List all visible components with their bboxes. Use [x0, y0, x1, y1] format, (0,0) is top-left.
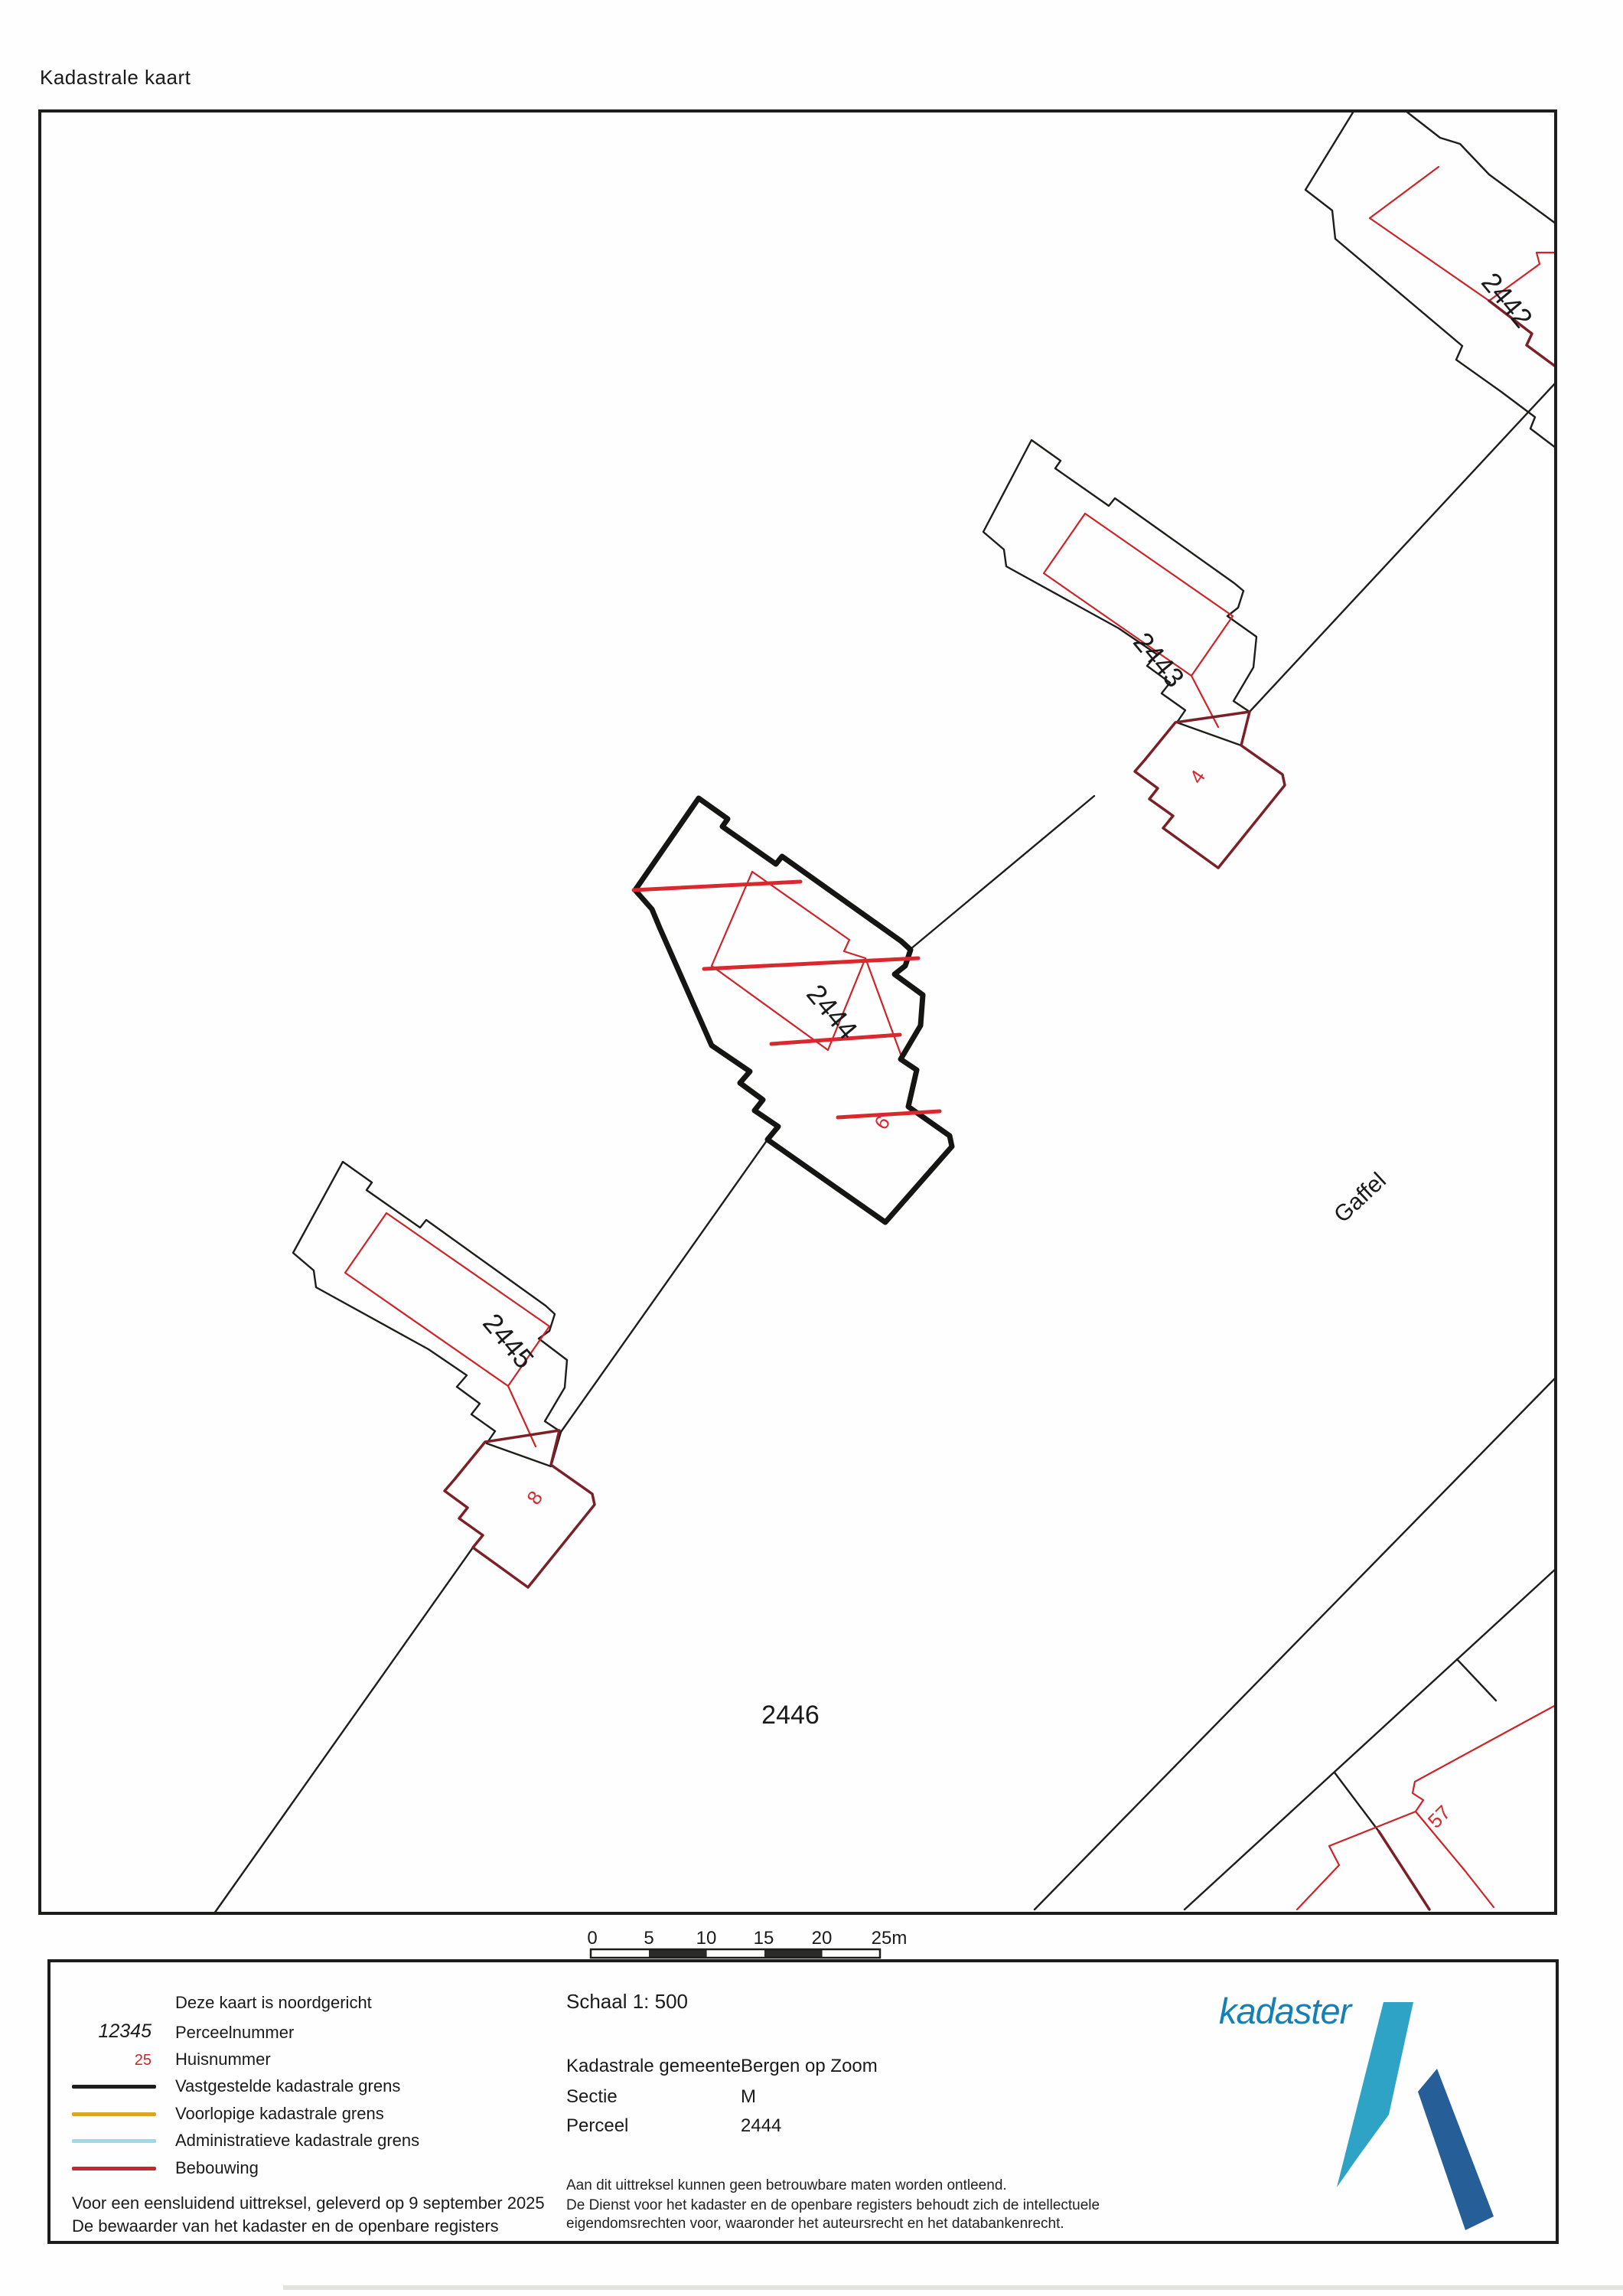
house-number-label: Huisnummer	[175, 2050, 271, 2069]
building-outlines	[345, 167, 1556, 1910]
building-57-outline	[1297, 1705, 1556, 1910]
front-boundary-2443-2444	[911, 796, 1094, 949]
gemeente-label: Kadastrale gemeente	[566, 2056, 741, 2077]
house-number-57: 57	[1423, 1801, 1455, 1833]
building-2442	[1370, 167, 1556, 301]
selected-parcel-2444-boundary	[635, 798, 952, 1222]
perceel-value: 2444	[741, 2115, 781, 2137]
established-boundary-swatch	[72, 2085, 156, 2089]
disclaimer-line2: De Dienst voor het kadaster en de openba…	[566, 2197, 1100, 2214]
house-8-outline	[445, 1430, 595, 1587]
party-wall-2	[704, 958, 918, 969]
sectie-value: M	[741, 2086, 756, 2108]
scale-text: Schaal 1: 500	[566, 1990, 688, 2014]
extract-footer-line2: De bewaarder van het kadaster en de open…	[72, 2216, 499, 2236]
parcel-label-2443: 2443	[1127, 626, 1191, 693]
logo-light-blade	[1337, 2002, 1413, 2187]
scale-tick-15: 15	[754, 1928, 774, 1949]
party-walls-2444	[634, 882, 940, 1117]
parcel-number-label: Perceelnummer	[175, 2023, 294, 2043]
front-boundary-2444-2445	[561, 1140, 768, 1432]
house-number-8: 8	[522, 1486, 547, 1508]
sectie-label: Sectie	[566, 2086, 618, 2108]
building-label: Bebouwing	[175, 2158, 259, 2178]
parcel-label-2442: 2442	[1475, 266, 1539, 334]
road-branch-2	[1457, 1659, 1496, 1701]
logo-dark-blade	[1418, 2069, 1494, 2230]
scale-tick-0: 0	[587, 1928, 597, 1949]
administrative-boundary-label: Administratieve kadastrale grens	[175, 2131, 419, 2151]
administrative-boundary-swatch	[72, 2139, 156, 2143]
parcel-label-2446: 2446	[761, 1701, 820, 1730]
gemeente-value: Bergen op Zoom	[741, 2056, 878, 2077]
scale-tick-5: 5	[644, 1928, 653, 1949]
building-swatch	[72, 2167, 156, 2170]
scale-bar-ticks: 0 5 10 15 20 25m	[587, 1928, 907, 1949]
scale-tick-25m: 25m	[872, 1928, 908, 1949]
scale-bar-segment-dark-1	[649, 1949, 707, 1958]
cadastral-extract-sheet: Kadastrale kaart	[0, 0, 1623, 2296]
house-number-labels: 4 6 8 57	[522, 765, 1455, 1832]
scale-bar: 0 5 10 15 20 25m	[587, 1928, 907, 1958]
front-boundary-2442-2443	[1250, 383, 1556, 712]
cadastral-map: 2442 2443 2444 2445 2446 4 6 8 57 Gaffel…	[0, 0, 1623, 2296]
scan-edge-artifact	[283, 2285, 1623, 2290]
house-number-sample: 25	[124, 2052, 152, 2069]
road-edge-lower	[1185, 1569, 1556, 1910]
scale-tick-20: 20	[812, 1928, 833, 1949]
kadaster-logo-icon	[1333, 1996, 1498, 2237]
scale-bar-segment-dark-2	[764, 1949, 823, 1958]
parcel-label-2444: 2444	[800, 978, 864, 1045]
road-branch-1	[1335, 1773, 1379, 1831]
road-edge-upper	[1035, 1378, 1556, 1910]
house-front-outlines	[445, 301, 1556, 1910]
extract-footer-line1: Voor een eensluidend uittreksel, gelever…	[72, 2193, 545, 2213]
provisional-boundary-label: Voorlopige kadastrale grens	[175, 2104, 384, 2124]
map-border	[40, 111, 1556, 1913]
parcel-2442-boundary	[1406, 111, 1556, 223]
established-boundary-label: Vastgestelde kadastrale grens	[175, 2076, 400, 2096]
front-boundary-2445-2446	[214, 1548, 473, 1913]
provisional-boundary-swatch	[72, 2112, 156, 2116]
parcel-2443-boundary	[983, 440, 1256, 745]
building-57-outline-2	[1416, 1812, 1494, 1907]
house-57-front	[1379, 1831, 1429, 1910]
house-number-4: 4	[1185, 765, 1210, 788]
parcel-2445-boundary	[293, 1162, 567, 1466]
scale-tick-10: 10	[696, 1928, 717, 1949]
disclaimer-line3: eigendomsrechten voor, waaronder het aut…	[566, 2216, 1064, 2232]
parcel-label-2445: 2445	[477, 1307, 540, 1375]
street-label-gaffel: Gaffel	[1329, 1168, 1391, 1228]
parcel-number-sample: 12345	[93, 2020, 152, 2043]
kadaster-logo-text: kadaster	[1219, 1990, 1351, 2032]
disclaimer-line1: Aan dit uittreksel kunnen geen betrouwba…	[566, 2177, 1007, 2194]
north-note: Deze kaart is noordgericht	[175, 1993, 372, 2013]
scale-bar-frame	[591, 1949, 880, 1958]
perceel-label: Perceel	[566, 2115, 628, 2137]
